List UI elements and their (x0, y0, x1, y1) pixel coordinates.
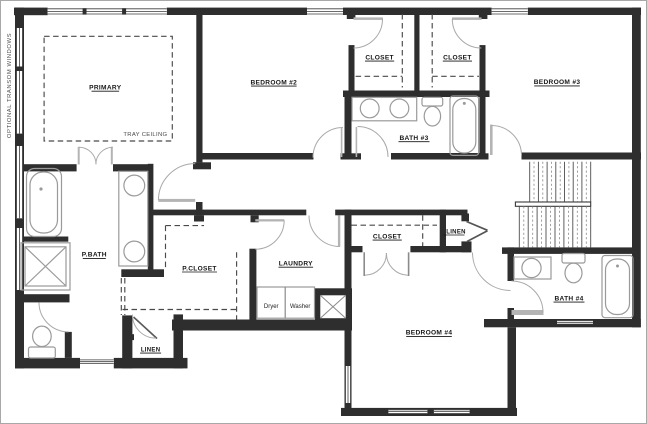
svg-text:LINEN: LINEN (141, 347, 161, 353)
svg-text:BEDROOM #4: BEDROOM #4 (406, 330, 453, 337)
svg-text:P.BATH: P.BATH (82, 252, 107, 259)
svg-text:BATH #4: BATH #4 (554, 295, 583, 302)
svg-text:PRIMARY: PRIMARY (89, 85, 122, 92)
svg-text:BEDROOM #2: BEDROOM #2 (250, 79, 297, 86)
svg-text:BEDROOM #3: BEDROOM #3 (534, 79, 581, 86)
svg-text:CLOSET: CLOSET (443, 54, 472, 61)
svg-text:P.CLOSET: P.CLOSET (182, 265, 217, 272)
svg-text:CLOSET: CLOSET (365, 54, 394, 61)
svg-text:CLOSET: CLOSET (373, 233, 402, 240)
svg-text:BATH #3: BATH #3 (399, 135, 428, 142)
svg-text:LAUNDRY: LAUNDRY (279, 261, 313, 268)
svg-text:TRAY CEILING: TRAY CEILING (123, 132, 167, 138)
svg-text:LINEN: LINEN (446, 229, 466, 235)
svg-text:Dryer: Dryer (264, 304, 279, 310)
svg-text:OPTIONAL TRANSOM WINDOWS: OPTIONAL TRANSOM WINDOWS (7, 33, 13, 138)
svg-text:Washer: Washer (290, 304, 310, 310)
